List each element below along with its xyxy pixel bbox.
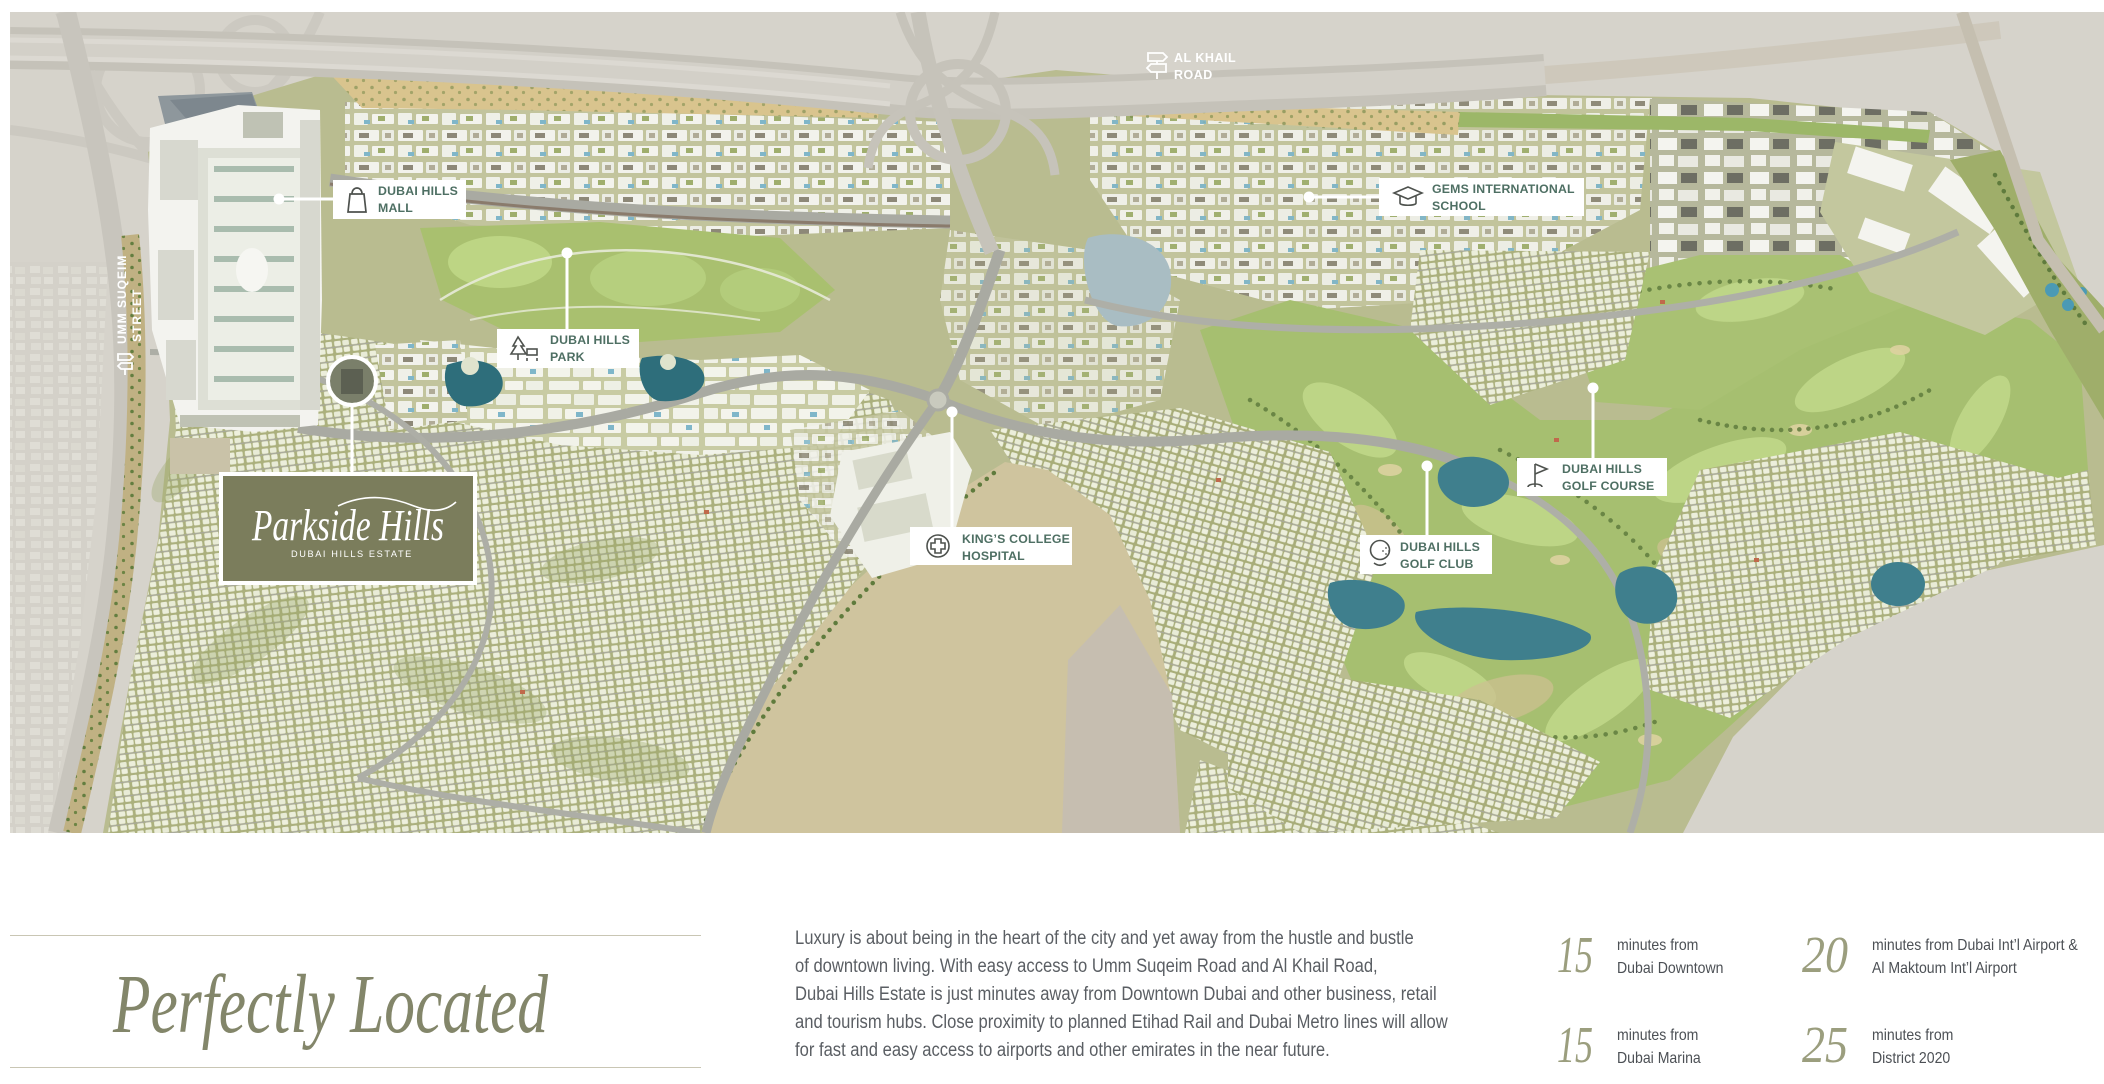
svg-text:ROAD: ROAD bbox=[1174, 68, 1213, 82]
svg-text:DUBAI HILLS: DUBAI HILLS bbox=[550, 333, 630, 347]
svg-text:GEMS INTERNATIONAL: GEMS INTERNATIONAL bbox=[1432, 182, 1575, 196]
svg-text:STREET: STREET bbox=[130, 289, 144, 342]
svg-text:Parkside Hills: Parkside Hills bbox=[251, 501, 444, 550]
svg-text:DUBAI HILLS: DUBAI HILLS bbox=[1562, 462, 1642, 476]
svg-text:MALL: MALL bbox=[378, 201, 413, 215]
svg-text:GOLF COURSE: GOLF COURSE bbox=[1562, 479, 1654, 493]
svg-text:15: 15 bbox=[1557, 1020, 1593, 1074]
svg-text:DUBAI HILLS: DUBAI HILLS bbox=[378, 184, 458, 198]
svg-text:Perfectly Located: Perfectly Located bbox=[112, 958, 548, 1051]
svg-text:15: 15 bbox=[1557, 930, 1593, 984]
svg-text:SCHOOL: SCHOOL bbox=[1432, 199, 1486, 213]
svg-text:25: 25 bbox=[1802, 1020, 1848, 1074]
svg-text:20: 20 bbox=[1802, 930, 1848, 984]
svg-text:DUBAI HILLS ESTATE: DUBAI HILLS ESTATE bbox=[291, 549, 413, 559]
svg-text:DUBAI HILLS: DUBAI HILLS bbox=[1400, 540, 1480, 554]
svg-text:HOSPITAL: HOSPITAL bbox=[962, 549, 1025, 563]
svg-text:KING’S COLLEGE: KING’S COLLEGE bbox=[962, 532, 1070, 546]
svg-text:UMM SUQEIM: UMM SUQEIM bbox=[115, 255, 129, 344]
svg-text:GOLF CLUB: GOLF CLUB bbox=[1400, 557, 1474, 571]
svg-text:AL KHAIL: AL KHAIL bbox=[1174, 51, 1236, 65]
svg-text:PARK: PARK bbox=[550, 350, 585, 364]
